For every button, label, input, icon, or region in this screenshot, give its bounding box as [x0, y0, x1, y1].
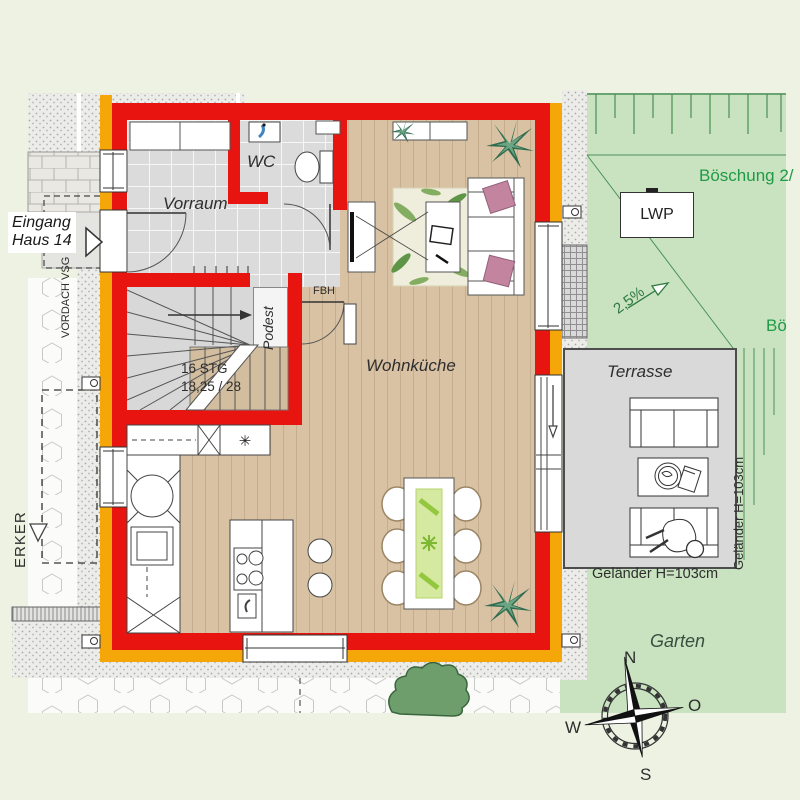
stair-wall-east: [288, 302, 302, 425]
wall-vorraum-living: [333, 103, 347, 210]
wall-west: [112, 103, 127, 650]
wall-east: [535, 103, 550, 650]
erker-label: ERKER: [12, 502, 29, 568]
gelaender-bottom-label: Geländer H=103cm: [592, 566, 718, 582]
stairs-dim-label: 18,25 / 28: [181, 379, 241, 394]
stair-wall-north: [127, 273, 250, 287]
compass-o-label: O: [688, 696, 701, 716]
entrance-label-line2: Haus 14: [12, 232, 72, 250]
entrance-label: Eingang Haus 14: [8, 212, 76, 253]
wc-wall-south: [228, 192, 268, 204]
garten-label: Garten: [650, 631, 705, 652]
entrance-label-line1: Eingang: [12, 214, 72, 232]
light-shaft-grate: [562, 245, 587, 338]
grass-paver-row-south: [28, 678, 560, 713]
insulation-east: [550, 103, 562, 662]
entrance-walkway: [28, 152, 103, 212]
stair-wall-pillar: [288, 273, 302, 302]
lwp-box: LWP: [620, 192, 694, 238]
vorraum-label: Vorraum: [163, 194, 228, 214]
floor-plan: ✳: [0, 0, 800, 800]
wall-north: [112, 103, 550, 120]
wc-wall-west: [228, 120, 240, 192]
vordach-label: VORDACH VSG: [60, 250, 72, 338]
stair-wall-south: [127, 410, 302, 425]
compass-w-label: W: [565, 718, 581, 738]
insulation-west: [100, 95, 112, 662]
boeschung-right-label: Bö: [766, 316, 787, 336]
compass-n-label: N: [624, 648, 636, 668]
gelaender-right-label: Geländer H=103cm: [731, 452, 746, 570]
gravel-band-south: [100, 662, 562, 678]
podest-label: Podest: [260, 288, 276, 350]
wohnkueche-label: Wohnküche: [366, 356, 456, 376]
wall-south: [112, 633, 550, 650]
insulation-south: [100, 650, 562, 662]
boeschung-top-label: Böschung 2/: [699, 166, 794, 186]
fbh-label: FBH: [313, 285, 335, 297]
stairs-count-label: 16 STG: [181, 361, 228, 376]
terrasse-label: Terrasse: [607, 362, 673, 382]
compass-s-label: S: [640, 765, 651, 785]
wc-label: WC: [247, 152, 275, 172]
